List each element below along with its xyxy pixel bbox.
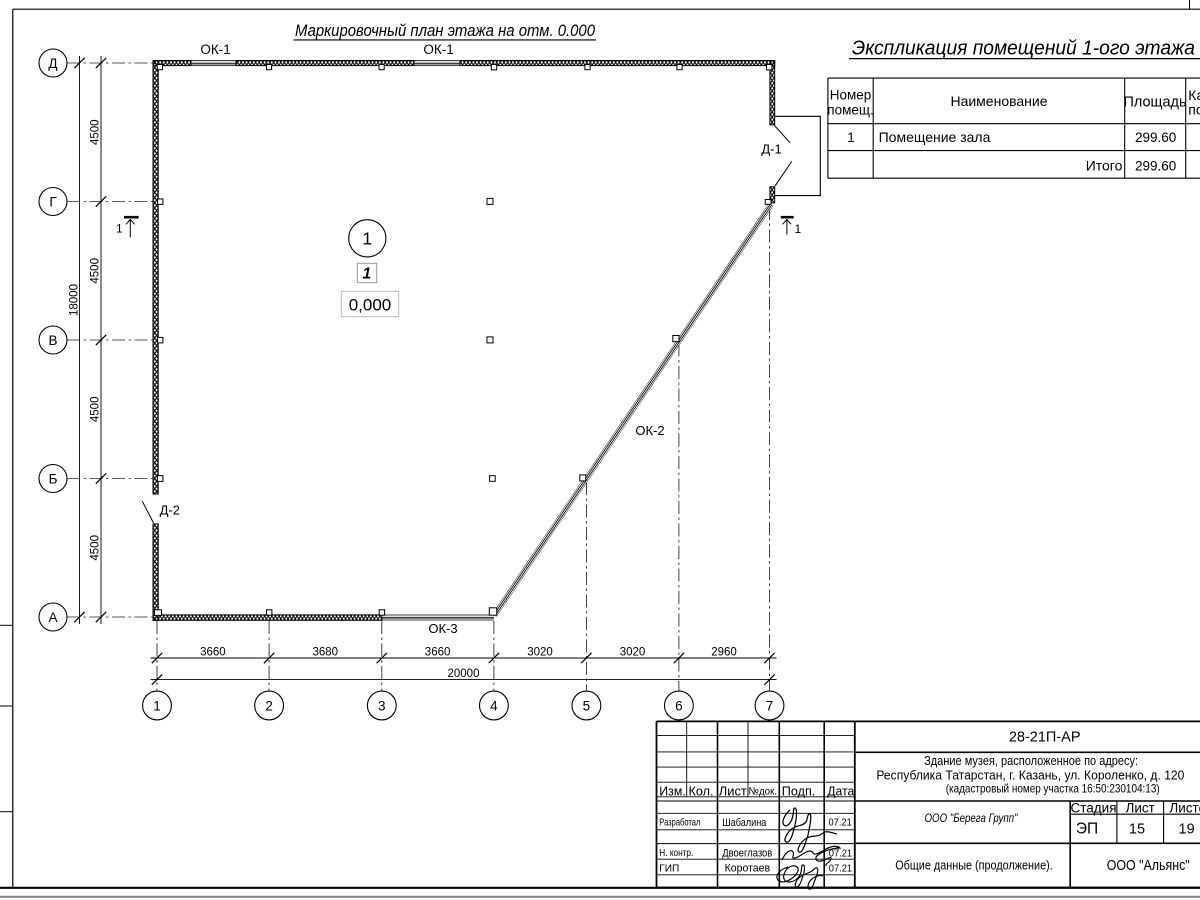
svg-text:Листов: Листов xyxy=(1169,801,1200,816)
svg-text:Коротаев: Коротаев xyxy=(725,862,771,874)
svg-text:Наименование: Наименование xyxy=(950,93,1047,109)
svg-text:1: 1 xyxy=(362,228,372,248)
svg-text:299.60: 299.60 xyxy=(1135,158,1176,173)
svg-text:Лист: Лист xyxy=(1126,801,1155,816)
svg-text:Экспликация помещений 1-ого эт: Экспликация помещений 1-ого этажа xyxy=(852,38,1195,60)
svg-text:5: 5 xyxy=(583,698,591,713)
svg-text:помещ.: помещ. xyxy=(827,103,873,118)
svg-text:Дата: Дата xyxy=(827,783,855,798)
svg-text:28-21П-АР: 28-21П-АР xyxy=(1009,729,1081,745)
svg-text:1: 1 xyxy=(116,222,123,236)
svg-text:№док.: №док. xyxy=(749,785,778,797)
svg-text:4500: 4500 xyxy=(90,258,102,284)
svg-text:ООО "Альянс": ООО "Альянс" xyxy=(1107,857,1190,874)
svg-text:Стадия: Стадия xyxy=(1070,801,1116,816)
svg-text:7: 7 xyxy=(766,698,774,713)
svg-text:Изм.: Изм. xyxy=(659,783,686,798)
svg-text:Площадь: Площадь xyxy=(1123,95,1186,111)
svg-text:3020: 3020 xyxy=(620,646,646,658)
svg-text:07.21: 07.21 xyxy=(829,862,852,874)
svg-text:ООО "Берега Групп": ООО "Берега Групп" xyxy=(925,811,1019,825)
svg-text:Маркировочный план этажа на от: Маркировочный план этажа на отм. 0.000 xyxy=(295,21,595,40)
svg-text:4500: 4500 xyxy=(90,535,102,561)
svg-text:Подп.: Подп. xyxy=(782,783,816,798)
svg-text:19: 19 xyxy=(1179,822,1195,838)
svg-text:18000: 18000 xyxy=(69,284,81,316)
svg-text:3680: 3680 xyxy=(313,646,339,658)
svg-text:Д-2: Д-2 xyxy=(160,503,180,518)
svg-text:Общие данные (продолжение).: Общие данные (продолжение). xyxy=(895,857,1053,872)
svg-text:3660: 3660 xyxy=(425,646,451,658)
svg-text:ЭП: ЭП xyxy=(1076,821,1098,838)
svg-text:ГИП: ГИП xyxy=(659,863,679,874)
svg-text:2960: 2960 xyxy=(711,646,737,658)
svg-text:Б: Б xyxy=(49,471,58,486)
svg-text:В: В xyxy=(48,333,57,348)
svg-text:Д-1: Д-1 xyxy=(761,142,781,157)
svg-text:ОК-1: ОК-1 xyxy=(423,42,453,57)
svg-text:299.60: 299.60 xyxy=(1135,130,1176,145)
svg-text:Здание музея, расположенное по: Здание музея, расположенное по адресу: xyxy=(924,753,1138,768)
svg-text:Кол.: Кол. xyxy=(689,783,714,798)
svg-text:(кадастровый номер участка 16:: (кадастровый номер участка 16:50:230104:… xyxy=(946,782,1160,796)
svg-text:4500: 4500 xyxy=(90,119,102,145)
svg-text:3660: 3660 xyxy=(200,646,226,658)
svg-text:Двоеглазов: Двоеглазов xyxy=(722,848,772,860)
svg-text:0,000: 0,000 xyxy=(349,295,392,314)
svg-text:по: по xyxy=(1188,102,1200,118)
svg-text:3020: 3020 xyxy=(527,646,553,658)
svg-text:Н. контр.: Н. контр. xyxy=(659,848,693,859)
svg-text:Шабалина: Шабалина xyxy=(722,817,767,829)
svg-text:1: 1 xyxy=(153,698,161,713)
svg-text:Разработал: Разработал xyxy=(659,817,700,829)
svg-text:1: 1 xyxy=(362,266,371,283)
svg-text:15: 15 xyxy=(1129,822,1145,838)
svg-text:2: 2 xyxy=(265,698,273,713)
svg-text:А: А xyxy=(48,610,57,625)
svg-text:Г: Г xyxy=(49,194,57,209)
svg-text:4: 4 xyxy=(490,698,498,713)
svg-text:Помещение зала: Помещение зала xyxy=(879,129,991,145)
svg-text:ОК-3: ОК-3 xyxy=(428,621,457,636)
svg-text:3: 3 xyxy=(378,698,386,713)
svg-text:Итого: Итого xyxy=(1086,157,1123,173)
svg-text:Номер: Номер xyxy=(830,88,872,103)
svg-text:Республика Татарстан, г. Казан: Республика Татарстан, г. Казань, ул. Кор… xyxy=(876,767,1184,782)
svg-text:Д: Д xyxy=(48,56,57,71)
svg-text:ОК-1: ОК-1 xyxy=(200,42,230,57)
svg-text:1: 1 xyxy=(795,222,802,236)
svg-text:20000: 20000 xyxy=(448,668,480,680)
svg-text:4500: 4500 xyxy=(90,397,102,423)
svg-text:6: 6 xyxy=(675,698,683,713)
svg-text:1: 1 xyxy=(847,130,855,145)
svg-text:07.21: 07.21 xyxy=(829,816,852,828)
svg-text:ОК-2: ОК-2 xyxy=(635,423,664,438)
svg-text:Лист: Лист xyxy=(719,783,747,798)
